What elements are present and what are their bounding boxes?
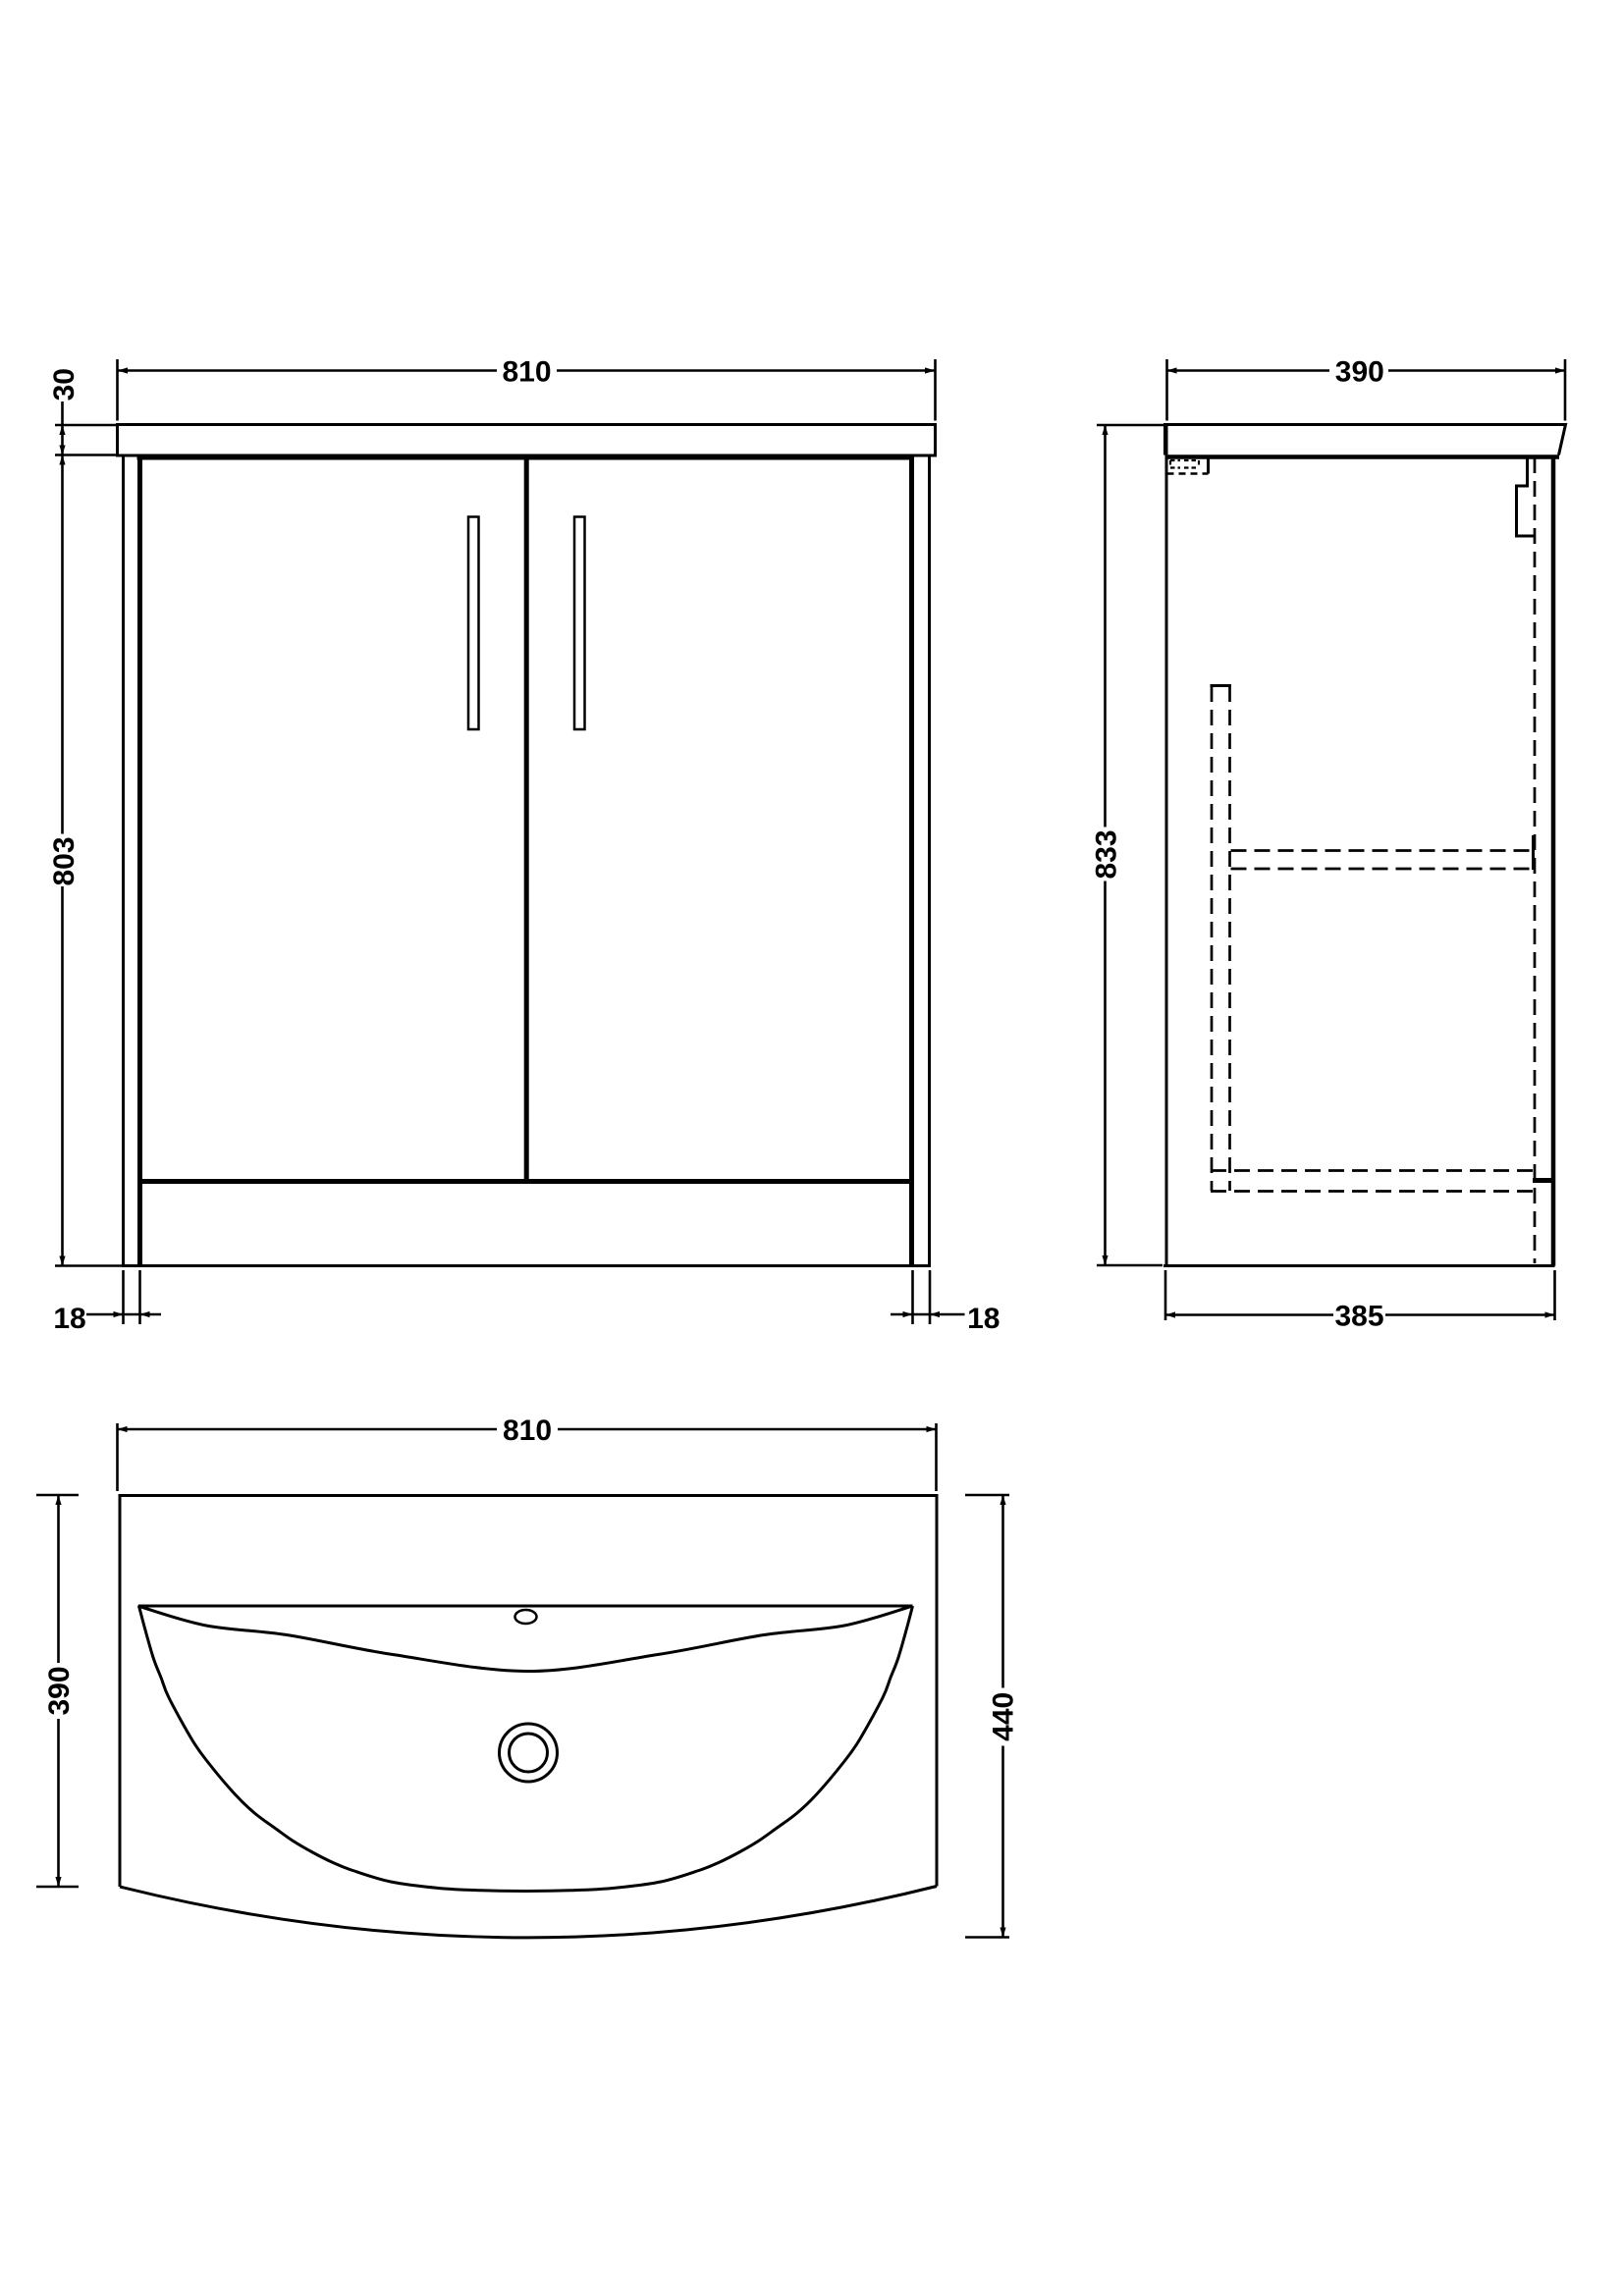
svg-text:810: 810 <box>502 356 551 389</box>
svg-text:30: 30 <box>48 368 81 400</box>
svg-text:390: 390 <box>43 1666 76 1715</box>
svg-text:440: 440 <box>987 1692 1019 1741</box>
svg-text:390: 390 <box>1335 356 1384 389</box>
svg-text:18: 18 <box>53 1303 85 1335</box>
svg-text:833: 833 <box>1091 829 1123 879</box>
svg-text:18: 18 <box>967 1303 1000 1335</box>
svg-text:810: 810 <box>503 1415 552 1447</box>
svg-text:803: 803 <box>48 836 81 885</box>
svg-text:385: 385 <box>1334 1301 1383 1333</box>
